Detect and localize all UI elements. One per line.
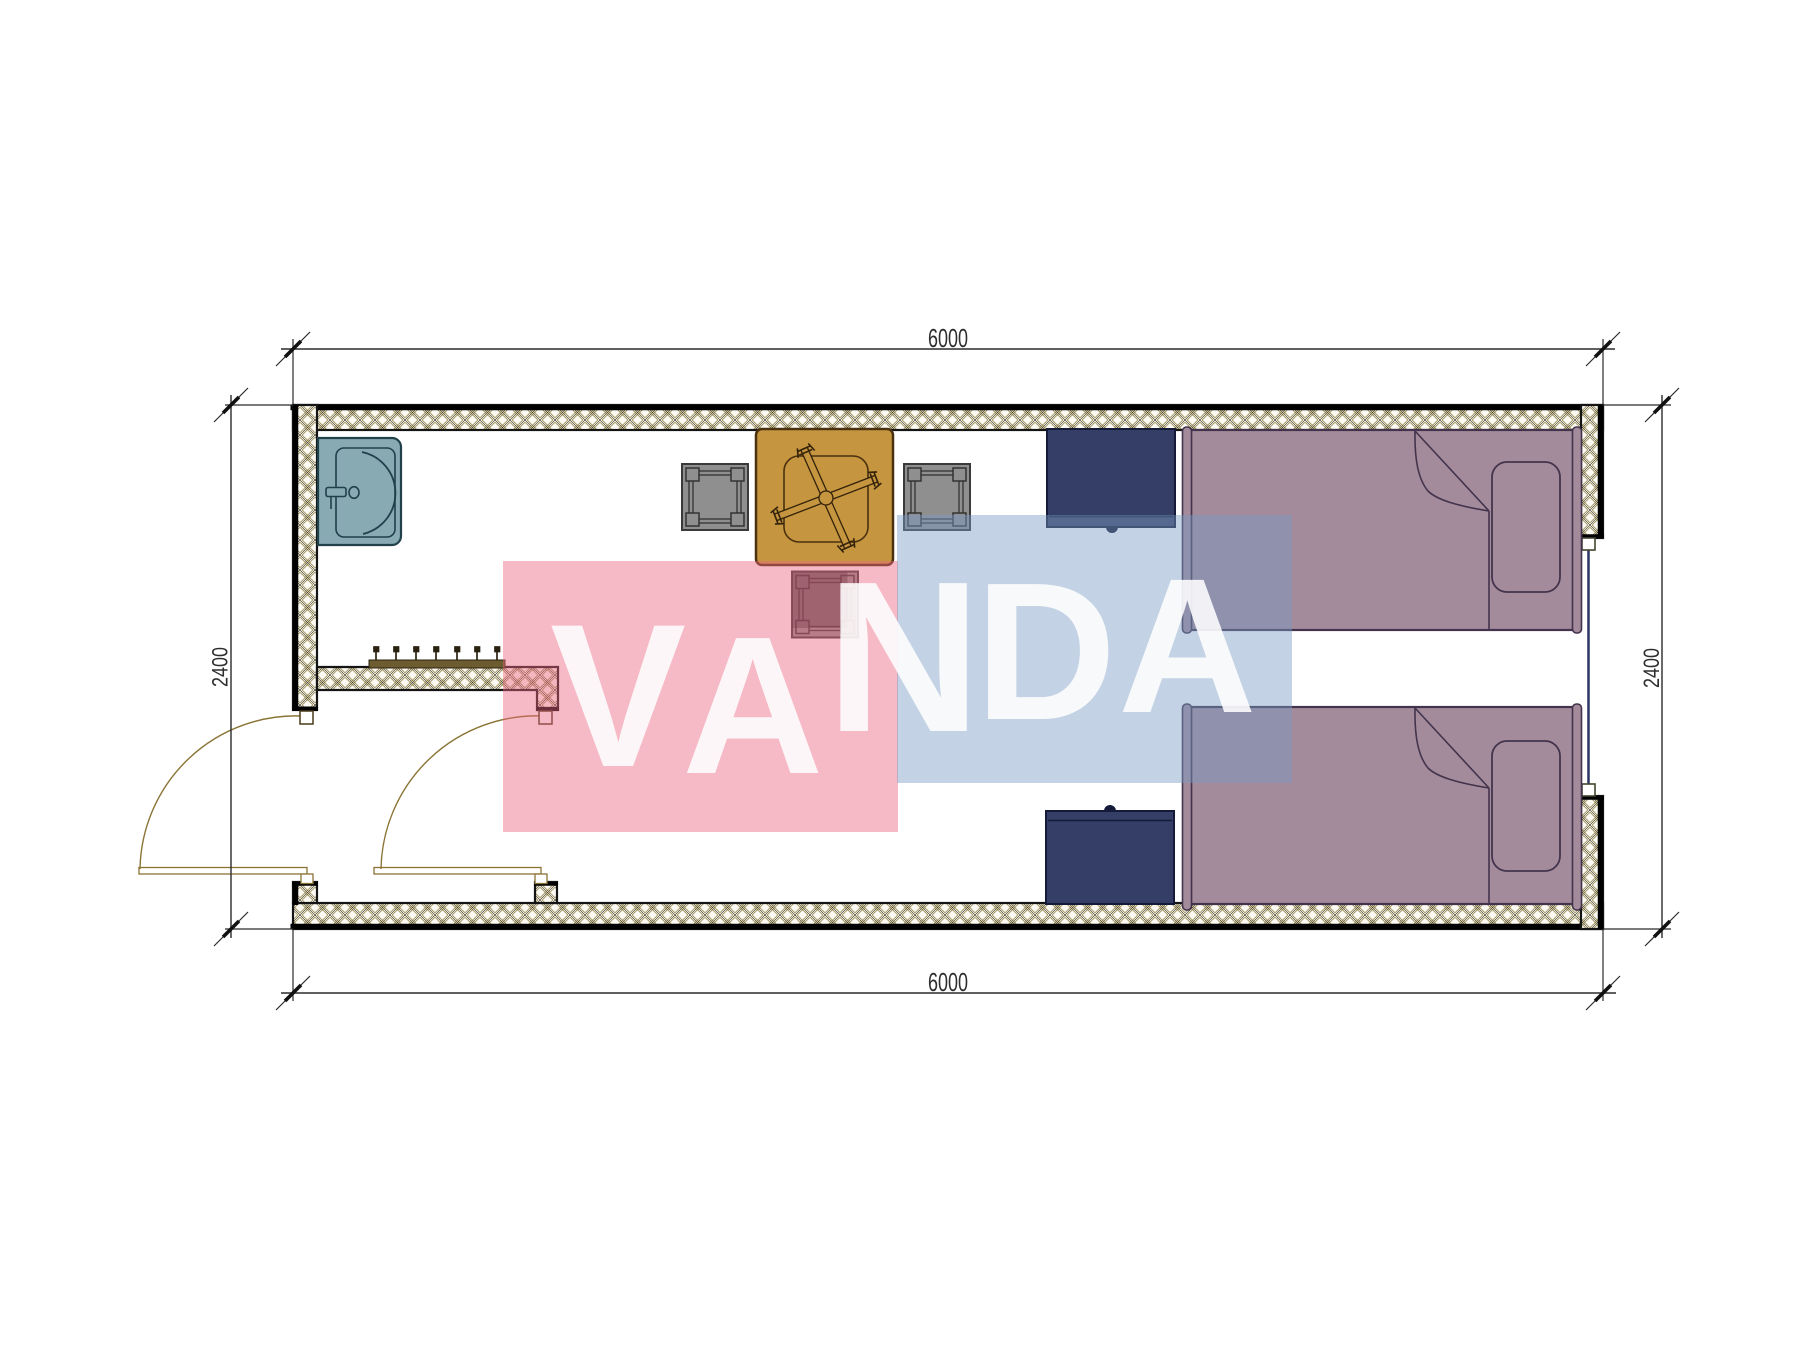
svg-text:D: D <box>975 542 1117 761</box>
svg-text:N: N <box>826 536 981 777</box>
svg-text:2400: 2400 <box>1639 648 1664 688</box>
svg-text:A: A <box>682 596 824 815</box>
svg-text:6000: 6000 <box>928 323 968 353</box>
svg-text:A: A <box>1118 538 1257 753</box>
svg-text:6000: 6000 <box>928 967 968 997</box>
svg-text:V: V <box>550 582 686 810</box>
svg-text:2400: 2400 <box>208 647 233 687</box>
